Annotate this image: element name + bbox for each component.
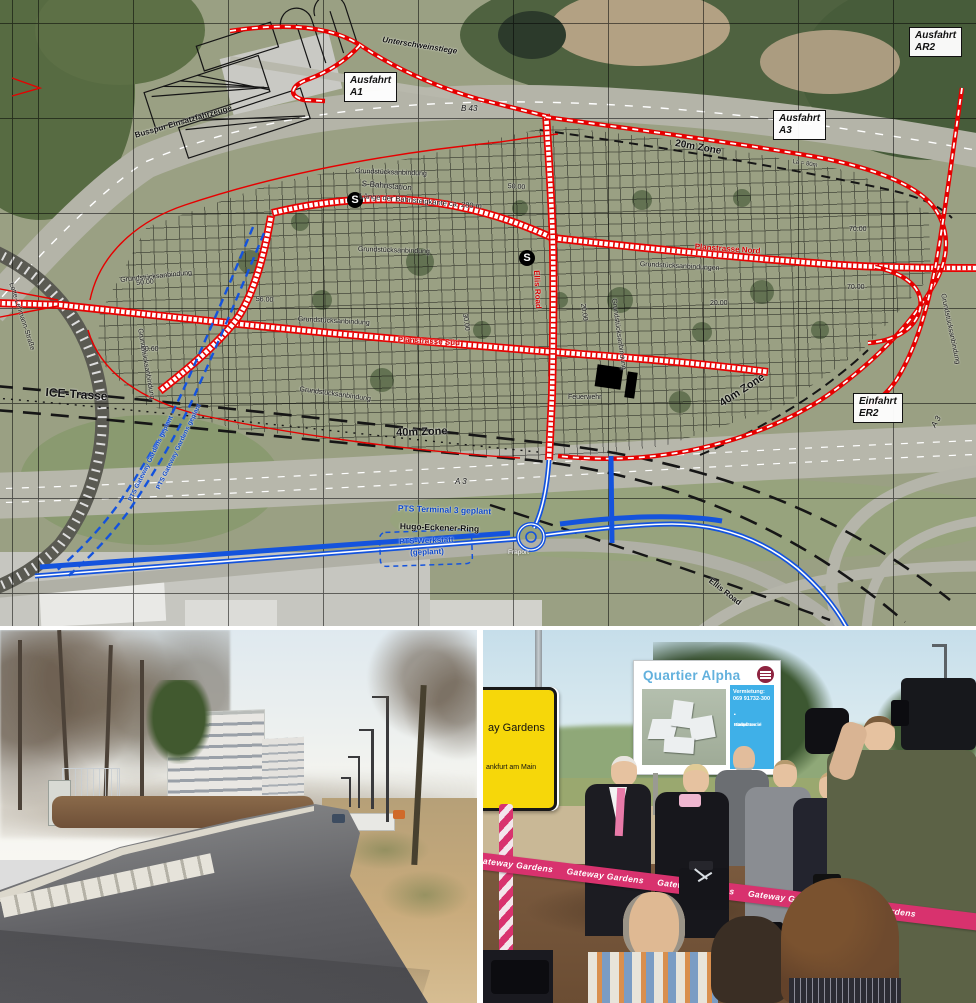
- map-label: (geplant): [410, 548, 444, 557]
- person-white-hair-head: [611, 756, 637, 786]
- map-label: PTS-Werkstatt: [399, 536, 454, 546]
- striped-shirt-shoulders: [588, 952, 718, 1003]
- map-label: 70.00: [847, 284, 865, 291]
- map-label: 40m Zone: [718, 372, 767, 409]
- map-label: A 3: [455, 478, 467, 486]
- map-label: A 3: [930, 415, 943, 429]
- map-label: Planstrasse Süd: [398, 336, 461, 347]
- map-label: Länge der Bahnsteigkante ca. 280 m: [359, 192, 482, 210]
- map-label: Lotte-Lehmann-Straße: [7, 282, 35, 351]
- pinstripe-shoulder: [789, 978, 901, 1003]
- town-sign-gateway-gardens: ay Gardens ankfurt am Main: [483, 687, 557, 811]
- map-label: 56.00: [256, 296, 274, 304]
- map-label: 50.60: [141, 346, 159, 353]
- photo-new-road: [0, 630, 477, 1003]
- bald-man-head: [623, 892, 685, 960]
- map-label: Grundstücksanbindung: [355, 168, 427, 178]
- billboard-bullet: • Stellplätze: [734, 711, 756, 731]
- billboard-title: Quartier Alpha: [643, 668, 740, 683]
- map-label: 50.00: [136, 278, 154, 287]
- map-label: Ellis Road: [532, 270, 542, 309]
- map-label: Unterschweinstiege: [382, 36, 458, 56]
- map-label: Feuerwehr: [568, 394, 601, 401]
- quartier-alpha-billboard: Quartier Alpha Vermietung: 069 91732-300…: [633, 660, 781, 775]
- map-label: Hugo-Eckener-Ring: [400, 522, 480, 533]
- photo-camera-icon: [491, 960, 549, 994]
- map-label: Grundstücksanbindung: [610, 298, 627, 370]
- map-label: B 43: [461, 105, 477, 113]
- billboard-phone: 069 91732-300: [733, 696, 770, 702]
- map-label: 30.00: [461, 313, 470, 331]
- tree-trunk: [18, 640, 22, 810]
- building-secondary: [262, 737, 304, 797]
- map-label: Grundstücksanbindung: [136, 328, 155, 400]
- sign-pole: [535, 630, 542, 687]
- grass-patch: [380, 870, 470, 920]
- map-label: 40m Zone: [396, 426, 448, 439]
- photo-ribbon-cutting: Quartier Alpha Vermietung: 069 91732-300…: [483, 630, 976, 1003]
- lamp-arm: [348, 756, 359, 758]
- tree-trunk: [140, 660, 144, 805]
- street-lamp: [349, 777, 351, 807]
- map-label: 70.00: [849, 226, 867, 233]
- map-label: Busspur Einsatzfahrzeuge: [134, 104, 233, 139]
- gateway-gardens-logo-icon: [757, 666, 774, 683]
- map-text-labels: UnterschweinstiegeB 43Busspur Einsatzfah…: [0, 0, 976, 626]
- map-label: 20.00: [579, 303, 588, 321]
- town-sign-city: ankfurt am Main: [486, 764, 536, 771]
- photo-collage: .rb{stroke:#e60000;stroke-width:8;fill:n…: [0, 0, 976, 1003]
- billboard-rental-label: Vermietung:: [733, 689, 765, 695]
- map-label: 20.00: [710, 300, 728, 307]
- dark-hair-person: [711, 916, 789, 1003]
- lamp-arm: [341, 777, 350, 779]
- ribbon-wrapped-post: [499, 804, 513, 954]
- map-label: La = 80m: [792, 159, 818, 169]
- map-label: Planstrasse Nord: [694, 243, 760, 256]
- distant-vehicle: [332, 814, 345, 823]
- evergreen-tree: [146, 680, 212, 764]
- map-label: Ellis Road: [707, 577, 742, 607]
- map-label: Grundstücksanbindung: [298, 316, 370, 327]
- pink-blouse-collar: [679, 794, 701, 807]
- map-label: Grundstücksanbindung: [299, 386, 371, 403]
- site-plan-map: .rb{stroke:#e60000;stroke-width:8;fill:n…: [0, 0, 976, 626]
- map-label: Grundstücksanbindung: [120, 269, 192, 283]
- town-sign-name: ay Gardens: [488, 722, 545, 734]
- map-label: ICE-Trasse: [45, 386, 108, 402]
- map-label: Grundstücksanbindung: [939, 293, 961, 365]
- excavator: [393, 810, 405, 819]
- map-label: Grundstücksanbindungen: [640, 261, 720, 272]
- map-label: Grundstücksanbindung: [358, 246, 430, 256]
- map-label: 50.00: [508, 183, 526, 191]
- map-label: Fraport: [508, 550, 529, 557]
- map-label: PTS Gateway Gardens geplant: [156, 403, 203, 491]
- person-blonde-woman-head: [683, 764, 709, 794]
- person-gray-hair-head: [733, 746, 755, 772]
- video-camera-icon: [901, 678, 976, 750]
- billboard-rendering: [642, 689, 726, 765]
- map-label: 20m Zone: [674, 139, 722, 157]
- map-label: S-Bahnstation: [361, 180, 412, 192]
- map-label: PTS Terminal 3 geplant: [398, 504, 492, 516]
- person-tan-suit-head: [773, 760, 797, 788]
